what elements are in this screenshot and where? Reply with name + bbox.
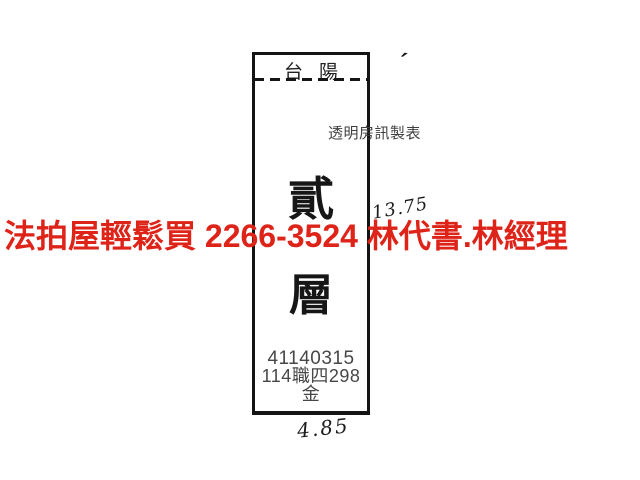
watermark-text: 法拍屋輕鬆買 2266-3524 林代書.林經理 — [4, 219, 568, 254]
floor-label-char-bottom: 層 — [255, 274, 367, 318]
dashed-partition-line — [254, 78, 368, 81]
case-reference-label: 114職四298金 — [255, 367, 367, 403]
scanned-floor-plan: 台 陽 貳 層 41140315 114職四298金 透明房訊製表 13.75 … — [0, 0, 640, 480]
corner-tick-mark: ′ — [398, 50, 408, 75]
floor-label-char-top: 貳 — [255, 176, 367, 222]
dimension-bottom-label: 4.85 — [296, 415, 350, 440]
data-source-label: 透明房訊製表 — [328, 122, 421, 143]
